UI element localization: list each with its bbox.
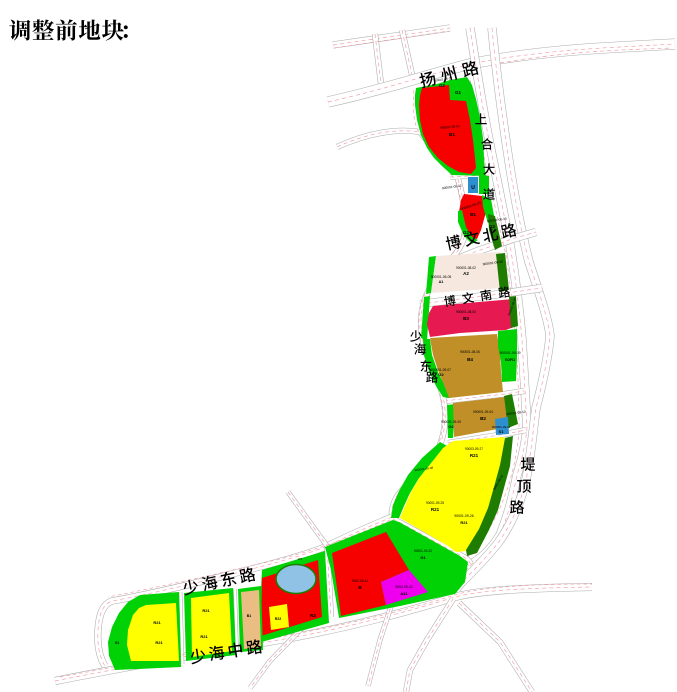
svg-text:G2R1: G2R1: [505, 357, 516, 362]
svg-text:U: U: [471, 185, 475, 191]
svg-text:R21: R21: [460, 520, 468, 525]
svg-text:900001-08-03: 900001-08-03: [456, 310, 476, 314]
svg-text:G2: G2: [438, 372, 444, 377]
svg-text:B2: B2: [480, 416, 486, 421]
svg-text:R21: R21: [431, 507, 440, 512]
svg-text:S1: S1: [499, 429, 505, 434]
svg-text:900001-09-04: 900001-09-04: [473, 410, 493, 414]
svg-text:B4: B4: [467, 357, 473, 362]
svg-text:A41: A41: [400, 591, 408, 596]
svg-text:90003-09-27: 90003-09-27: [465, 447, 483, 451]
svg-text:R21: R21: [202, 608, 210, 613]
svg-text:R22: R22: [275, 617, 281, 621]
svg-text:900001-08-02: 900001-08-02: [456, 266, 476, 270]
svg-text:9002-09-42: 9002-09-42: [395, 585, 412, 589]
svg-text:G1: G1: [115, 641, 120, 645]
svg-text:R21: R21: [153, 620, 161, 625]
svg-text:90001-09-22: 90001-09-22: [414, 549, 432, 553]
svg-text:900001-09-09: 900001-09-09: [499, 351, 520, 355]
svg-text:B1: B1: [449, 132, 455, 138]
svg-text:G1: G1: [420, 555, 426, 560]
svg-text:A2: A2: [463, 271, 469, 276]
svg-text:900001-06-05: 900001-06-05: [431, 275, 452, 279]
svg-text:W1: W1: [298, 557, 303, 561]
svg-text:G2: G2: [463, 230, 470, 235]
svg-text:B1: B1: [470, 212, 476, 217]
svg-text:G2: G2: [448, 424, 454, 429]
svg-text:90001-09-25: 90001-09-25: [426, 501, 444, 505]
svg-text:9002-09-41: 9002-09-41: [352, 579, 369, 583]
svg-text:R21: R21: [470, 453, 479, 458]
svg-text:G2: G2: [489, 224, 496, 229]
svg-text:A1: A1: [439, 280, 444, 284]
svg-text:90001-09-26: 90001-09-26: [454, 514, 473, 518]
svg-text:900001-08-06: 900001-08-06: [460, 350, 480, 354]
svg-text:B1: B1: [247, 614, 252, 618]
svg-text:R21: R21: [200, 634, 208, 639]
svg-text:G2: G2: [439, 83, 446, 88]
svg-text:B3: B3: [463, 316, 469, 321]
svg-text:R21: R21: [155, 640, 163, 645]
svg-text:G1: G1: [455, 90, 462, 95]
svg-text:R2: R2: [310, 613, 316, 618]
